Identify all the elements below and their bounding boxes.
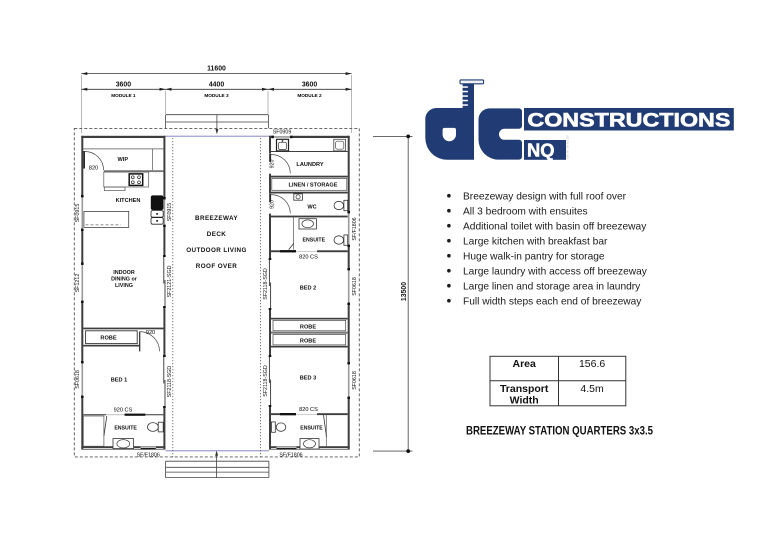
svg-text:ROBE: ROBE — [300, 339, 316, 345]
svg-text:ENSUITE: ENSUITE — [303, 237, 326, 243]
svg-text:SF0618: SF0618 — [75, 370, 81, 389]
svg-text:DECK: DECK — [207, 231, 226, 238]
svg-text:Full width steps each end of b: Full width steps each end of breezeway — [463, 297, 642, 308]
svg-text:SF/F1806: SF/F1806 — [279, 452, 302, 458]
svg-text:Large kitchen with breakfast b: Large kitchen with breakfast bar — [463, 237, 608, 248]
svg-text:LINEN / STORAGE: LINEN / STORAGE — [288, 183, 337, 189]
svg-text:4400: 4400 — [209, 81, 224, 88]
svg-text:ENSUITE: ENSUITE — [300, 425, 323, 431]
svg-text:SF2121-SGD: SF2121-SGD — [167, 265, 173, 297]
svg-text:SF/F1806: SF/F1806 — [137, 452, 160, 458]
svg-text:DINING or: DINING or — [111, 276, 138, 282]
svg-text:Area: Area — [513, 358, 537, 370]
svg-text:820 CS: 820 CS — [299, 254, 318, 260]
svg-text:920: 920 — [269, 160, 275, 169]
svg-text:INDOOR: INDOOR — [113, 270, 135, 276]
svg-text:820 CS: 820 CS — [299, 407, 318, 413]
svg-text:ENSUITE: ENSUITE — [114, 425, 137, 431]
svg-text:MODULE 2: MODULE 2 — [297, 93, 322, 98]
svg-text:920: 920 — [146, 330, 155, 336]
svg-text:11600: 11600 — [207, 66, 226, 73]
svg-text:OUTDOOR LIVING: OUTDOOR LIVING — [186, 247, 247, 254]
svg-text:3600: 3600 — [116, 81, 131, 88]
svg-text:Transport: Transport — [500, 383, 549, 395]
svg-text:920: 920 — [269, 200, 275, 209]
svg-text:Large linen and storage area i: Large linen and storage area in laundry — [463, 282, 641, 293]
svg-text:LIVING: LIVING — [115, 283, 133, 289]
svg-text:NQ: NQ — [527, 141, 555, 161]
svg-text:SF0909: SF0909 — [273, 130, 292, 136]
svg-text:Additional toilet with basin o: Additional toilet with basin off breezew… — [463, 222, 647, 233]
svg-text:156.6: 156.6 — [579, 358, 605, 370]
svg-text:SF0618: SF0618 — [352, 277, 358, 296]
svg-text:SF2118-SGD: SF2118-SGD — [167, 366, 173, 398]
svg-text:MODULE 1: MODULE 1 — [111, 93, 136, 98]
svg-text:MODULE 3: MODULE 3 — [204, 93, 229, 98]
svg-text:ROBE: ROBE — [100, 336, 116, 342]
svg-text:WIP: WIP — [118, 157, 129, 163]
svg-text:Huge walk-in pantry for storag: Huge walk-in pantry for storage — [463, 252, 605, 263]
svg-text:BED 3: BED 3 — [300, 376, 316, 382]
svg-text:3600: 3600 — [302, 81, 317, 88]
svg-text:13500: 13500 — [401, 282, 408, 301]
svg-text:All 3 bedroom with ensuites: All 3 bedroom with ensuites — [463, 207, 588, 218]
svg-text:Width: Width — [510, 395, 539, 407]
svg-text:820: 820 — [89, 165, 98, 171]
svg-text:BED 2: BED 2 — [300, 285, 316, 291]
svg-text:BREEZEWAY: BREEZEWAY — [195, 215, 238, 222]
svg-text:BREEZEWAY STATION QUARTERS 3x3: BREEZEWAY STATION QUARTERS 3x3.5 — [466, 424, 653, 438]
svg-text:KITCHEN: KITCHEN — [116, 198, 141, 204]
svg-text:CONSTRUCTIONS: CONSTRUCTIONS — [527, 111, 730, 132]
svg-text:WC: WC — [307, 205, 316, 211]
svg-text:BED 1: BED 1 — [111, 378, 127, 384]
svg-text:SF0915: SF0915 — [167, 203, 173, 222]
svg-text:920 CS: 920 CS — [114, 408, 133, 414]
svg-text:LAUNDRY: LAUNDRY — [296, 162, 323, 168]
svg-text:SF0618: SF0618 — [352, 371, 358, 390]
svg-text:ROBE: ROBE — [300, 325, 316, 331]
svg-text:SF1212: SF1212 — [75, 274, 81, 293]
svg-text:SF0915: SF0915 — [75, 204, 81, 223]
svg-text:SF2118-SGD: SF2118-SGD — [263, 365, 269, 397]
svg-text:SF2118-SGD: SF2118-SGD — [263, 268, 269, 300]
svg-text:ABN 96 759 425 118: ABN 96 759 425 118 — [566, 135, 570, 159]
svg-text:Large laundry with access off: Large laundry with access off breezeway — [463, 267, 648, 278]
svg-text:SF/F1806: SF/F1806 — [352, 217, 358, 240]
svg-text:4.5m: 4.5m — [580, 383, 604, 395]
svg-text:ROOF OVER: ROOF OVER — [196, 263, 237, 270]
svg-text:Breezeway design with full roo: Breezeway design with full roof over — [463, 192, 627, 203]
